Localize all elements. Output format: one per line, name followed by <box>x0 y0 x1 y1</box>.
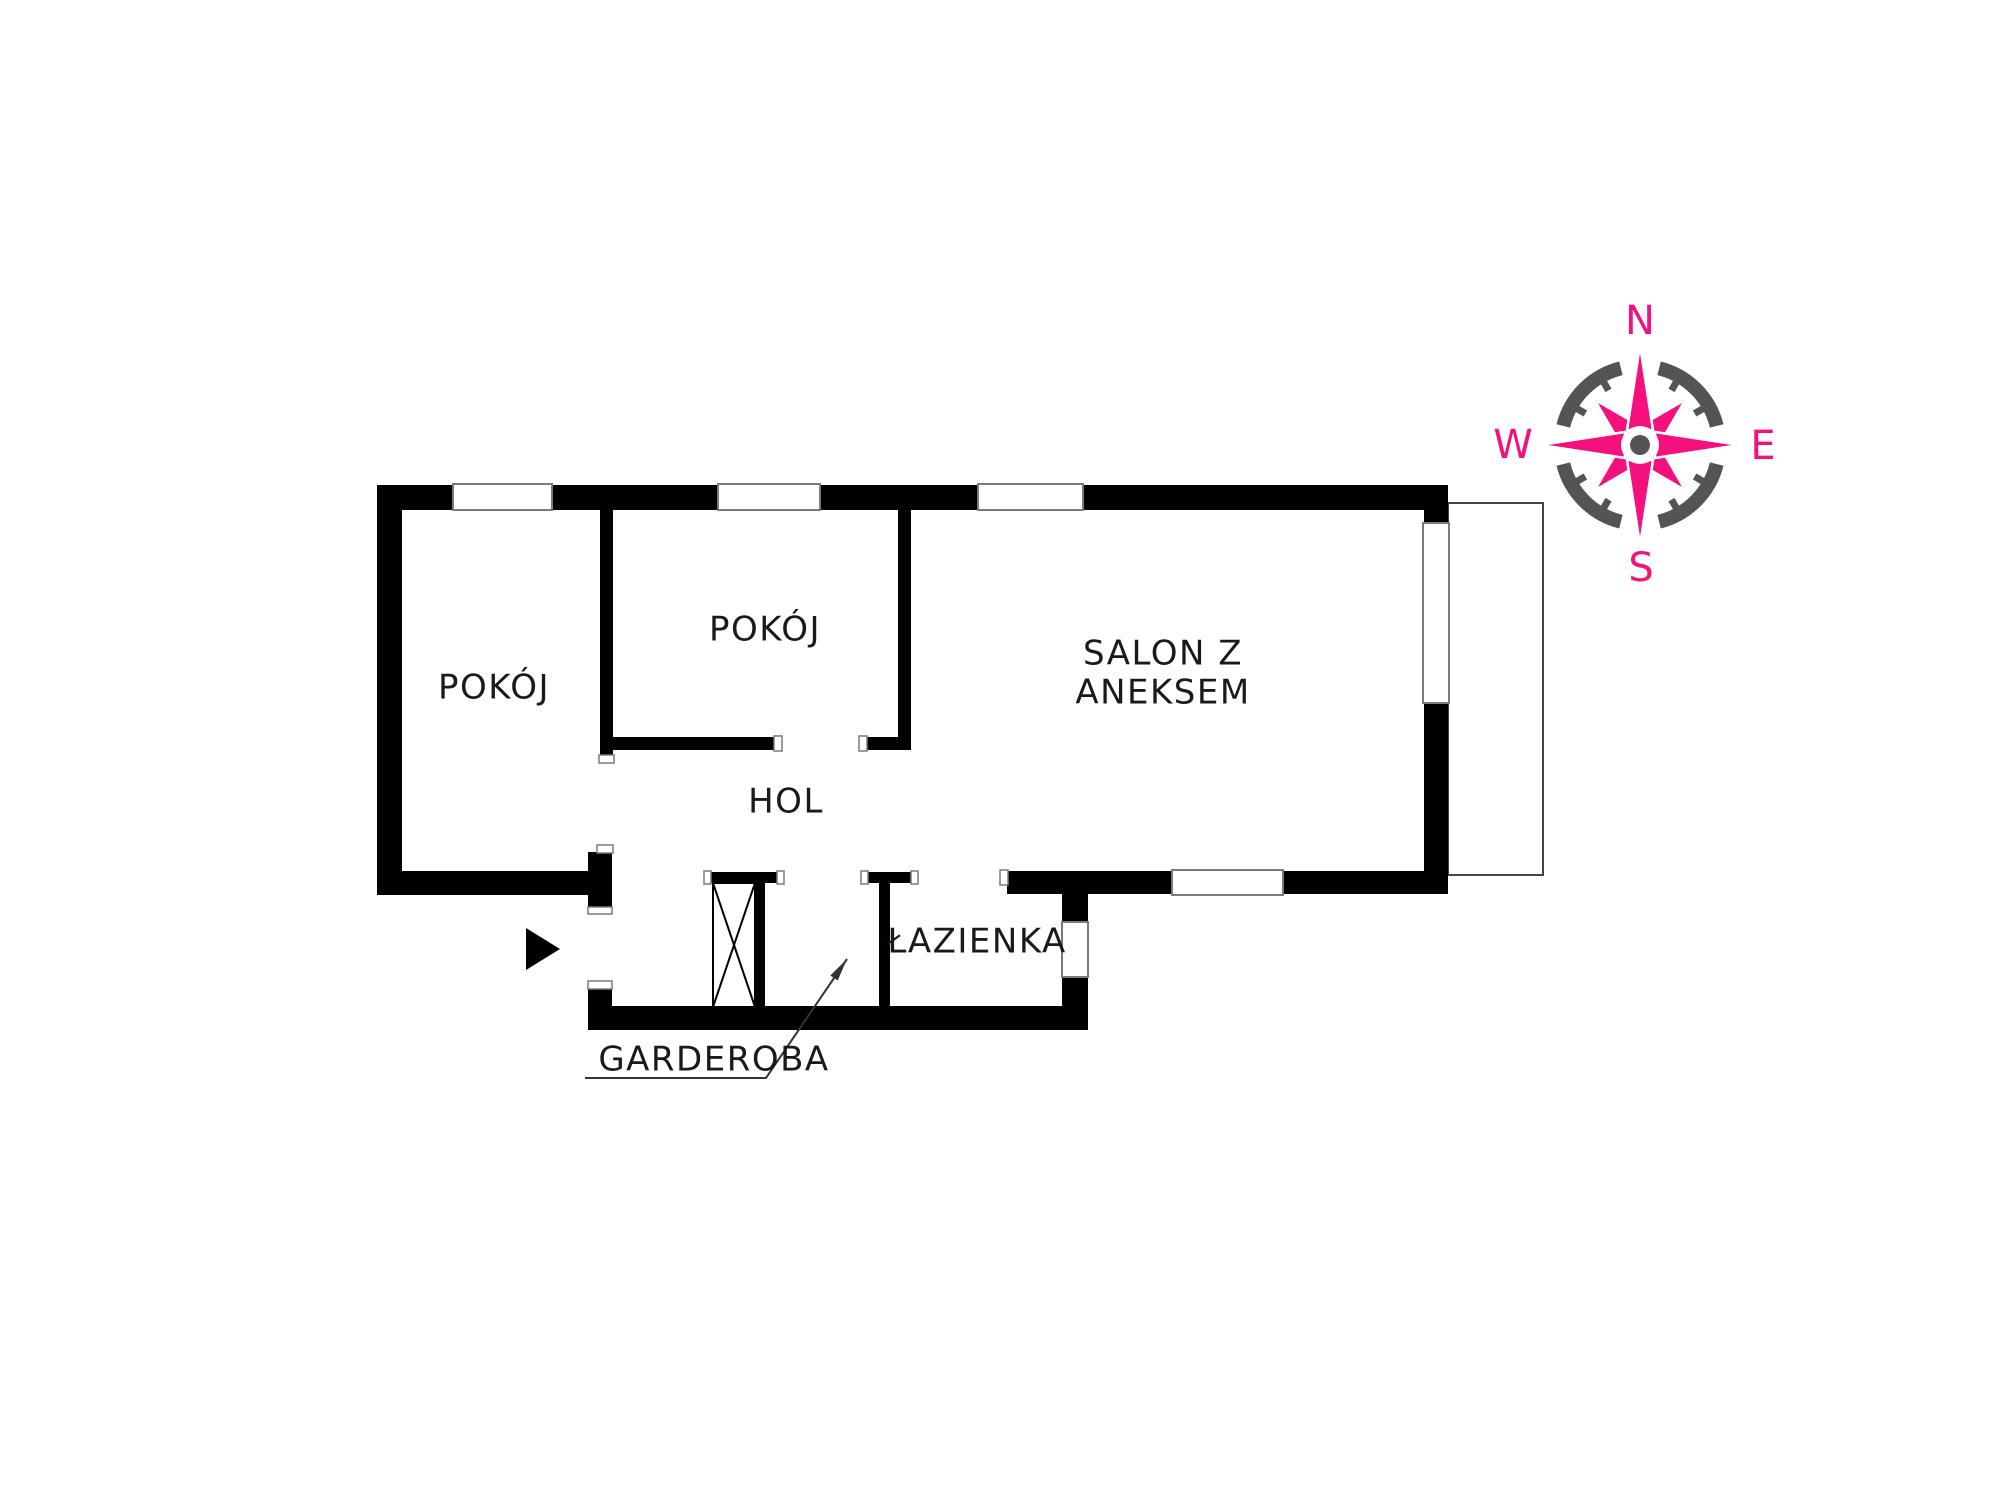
window-pokoj-top <box>718 484 820 510</box>
compass-rose: N E S W <box>1493 298 1775 591</box>
compass-letter-w: W <box>1493 422 1533 468</box>
compass-letter-e: E <box>1750 423 1775 469</box>
compass-letter-n: N <box>1625 298 1655 344</box>
window-salon-top <box>978 484 1083 510</box>
entrance-arrow-icon <box>526 928 560 970</box>
jamb-entrance-upper <box>588 907 612 914</box>
label-salon-line2: ANEKSEM <box>1075 673 1250 713</box>
wardrobe-box <box>713 883 755 1007</box>
window-salon-right <box>1423 523 1449 703</box>
jamb-wardrobe-right <box>777 871 784 884</box>
leader-arrowhead-icon <box>830 959 847 981</box>
wall-wardrobe-right <box>755 883 765 1007</box>
balcony-outline <box>1448 503 1543 875</box>
wall-wardrobe-top-bar <box>709 872 783 883</box>
label-lazienka: ŁAZIENKA <box>886 922 1067 962</box>
wall-left <box>377 485 402 895</box>
wall-bottom <box>588 1006 1088 1030</box>
jamb-entrance-top <box>597 845 613 853</box>
wall-garderoba-top-bar <box>867 872 917 883</box>
window-pokoj-left <box>453 484 552 510</box>
compass-letter-s: S <box>1628 545 1653 591</box>
label-hol: HOL <box>748 782 824 822</box>
jamb-pokoj-top-door-left <box>774 736 782 751</box>
jamb-pokoj-left-door <box>599 755 614 763</box>
label-pokoj-top: POKÓJ <box>709 609 821 650</box>
jamb-garderoba-left <box>861 871 868 884</box>
wall-entrance-stub-upper <box>588 852 612 908</box>
jamb-wardrobe-left <box>704 871 711 884</box>
window-salon-bottom <box>1172 870 1283 895</box>
floor-plan-page: POKÓJ POKÓJ SALON Z ANEKSEM HOL ŁAZIENKA… <box>0 0 2000 1500</box>
jamb-bathroom-door <box>1000 870 1008 885</box>
label-salon-line1: SALON Z <box>1083 634 1243 674</box>
label-garderoba: GARDEROBA <box>598 1040 829 1080</box>
wall-pokoj-top-salon <box>898 510 911 750</box>
jamb-pokoj-top-door-right <box>859 736 867 751</box>
jamb-garderoba-right <box>911 871 918 884</box>
label-pokoj-left: POKÓJ <box>438 667 550 708</box>
floor-plan-svg: POKÓJ POKÓJ SALON Z ANEKSEM HOL ŁAZIENKA… <box>0 0 2000 1500</box>
wall-pokoj-left-bottom <box>377 871 588 895</box>
wall-between-pokoje <box>600 510 613 762</box>
compass-hub-dot <box>1630 435 1650 455</box>
jamb-entrance-lower <box>588 981 612 989</box>
wall-pokoj-top-bottom-left <box>613 737 776 750</box>
